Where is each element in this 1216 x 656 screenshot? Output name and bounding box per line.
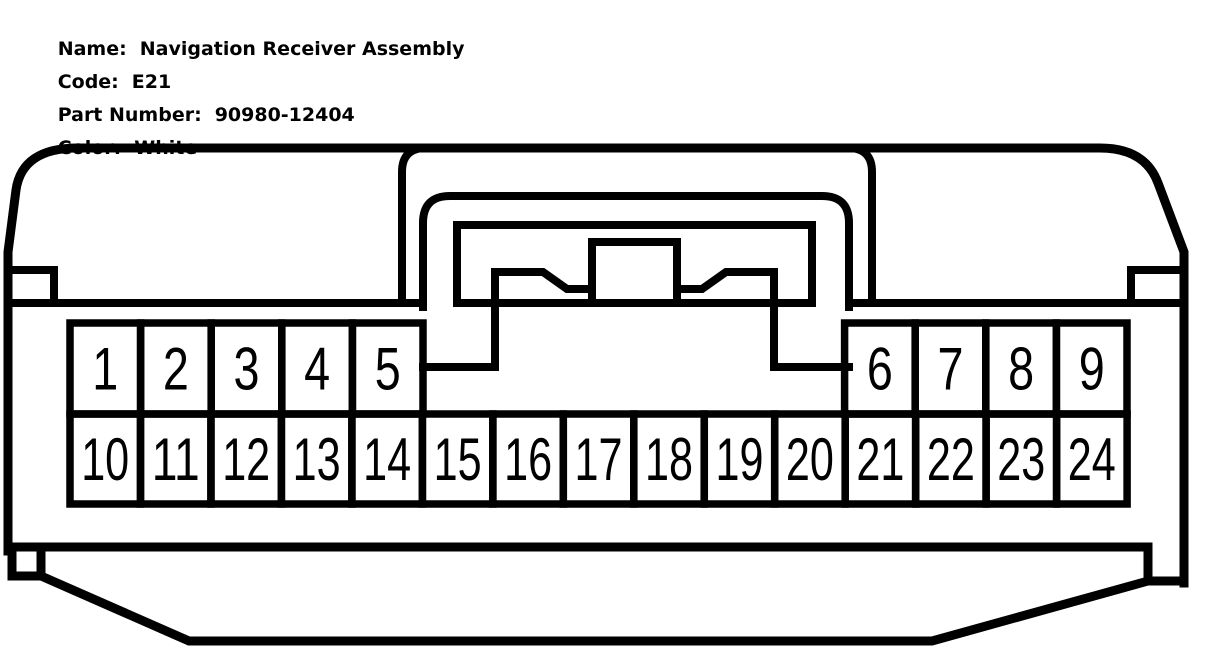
connector-header: Name:Navigation Receiver Assembly Code:E… <box>18 1 465 133</box>
pin-number: 21 <box>856 426 904 493</box>
pin-number: 18 <box>645 426 693 493</box>
pin-number: 13 <box>293 426 341 493</box>
field-value-part-number: 90980-12404 <box>215 104 355 126</box>
pin-number: 17 <box>575 426 623 493</box>
pin-number: 20 <box>786 426 834 493</box>
header-field-name: Name:Navigation Receiver Assembly <box>18 1 465 34</box>
pin-number: 14 <box>363 426 411 493</box>
pin-number: 1 <box>92 336 118 403</box>
pin-number: 15 <box>434 426 482 493</box>
pin-number: 6 <box>867 336 893 403</box>
pin-number: 5 <box>375 336 401 403</box>
pin-number: 2 <box>163 336 189 403</box>
pin-number: 7 <box>938 336 964 403</box>
pin-number: 12 <box>222 426 270 493</box>
field-label-part-number: Part Number: <box>58 104 202 126</box>
field-value-color: White <box>134 137 197 159</box>
connector-drawing: 123456789101112131415161718192021222324 <box>8 148 1184 641</box>
field-label-code: Code: <box>58 71 119 93</box>
connector-skirt <box>12 547 1184 641</box>
field-value-code: E21 <box>132 71 171 93</box>
pin-number: 24 <box>1068 426 1116 493</box>
pin-number: 8 <box>1008 336 1034 403</box>
pin-number: 4 <box>304 336 330 403</box>
field-value-name: Navigation Receiver Assembly <box>140 38 465 60</box>
pin-number: 16 <box>504 426 552 493</box>
pin-grid: 123456789101112131415161718192021222324 <box>70 323 1127 504</box>
pin-number: 3 <box>234 336 260 403</box>
pin-number: 11 <box>152 426 200 493</box>
pin-number: 22 <box>927 426 975 493</box>
pin-number: 9 <box>1079 336 1105 403</box>
lock-key-left-wing <box>423 272 592 367</box>
field-label-name: Name: <box>58 38 127 60</box>
connector-pinout-page: Name:Navigation Receiver Assembly Code:E… <box>0 0 1216 656</box>
tab-inner <box>423 196 849 307</box>
lock-center-post <box>592 242 677 303</box>
pin-number: 23 <box>997 426 1045 493</box>
field-label-color: Color: <box>58 137 122 159</box>
pin-number: 10 <box>81 426 129 493</box>
lock-housing <box>457 225 812 303</box>
lock-key-right-wing <box>677 272 849 367</box>
pin-number: 19 <box>716 426 764 493</box>
